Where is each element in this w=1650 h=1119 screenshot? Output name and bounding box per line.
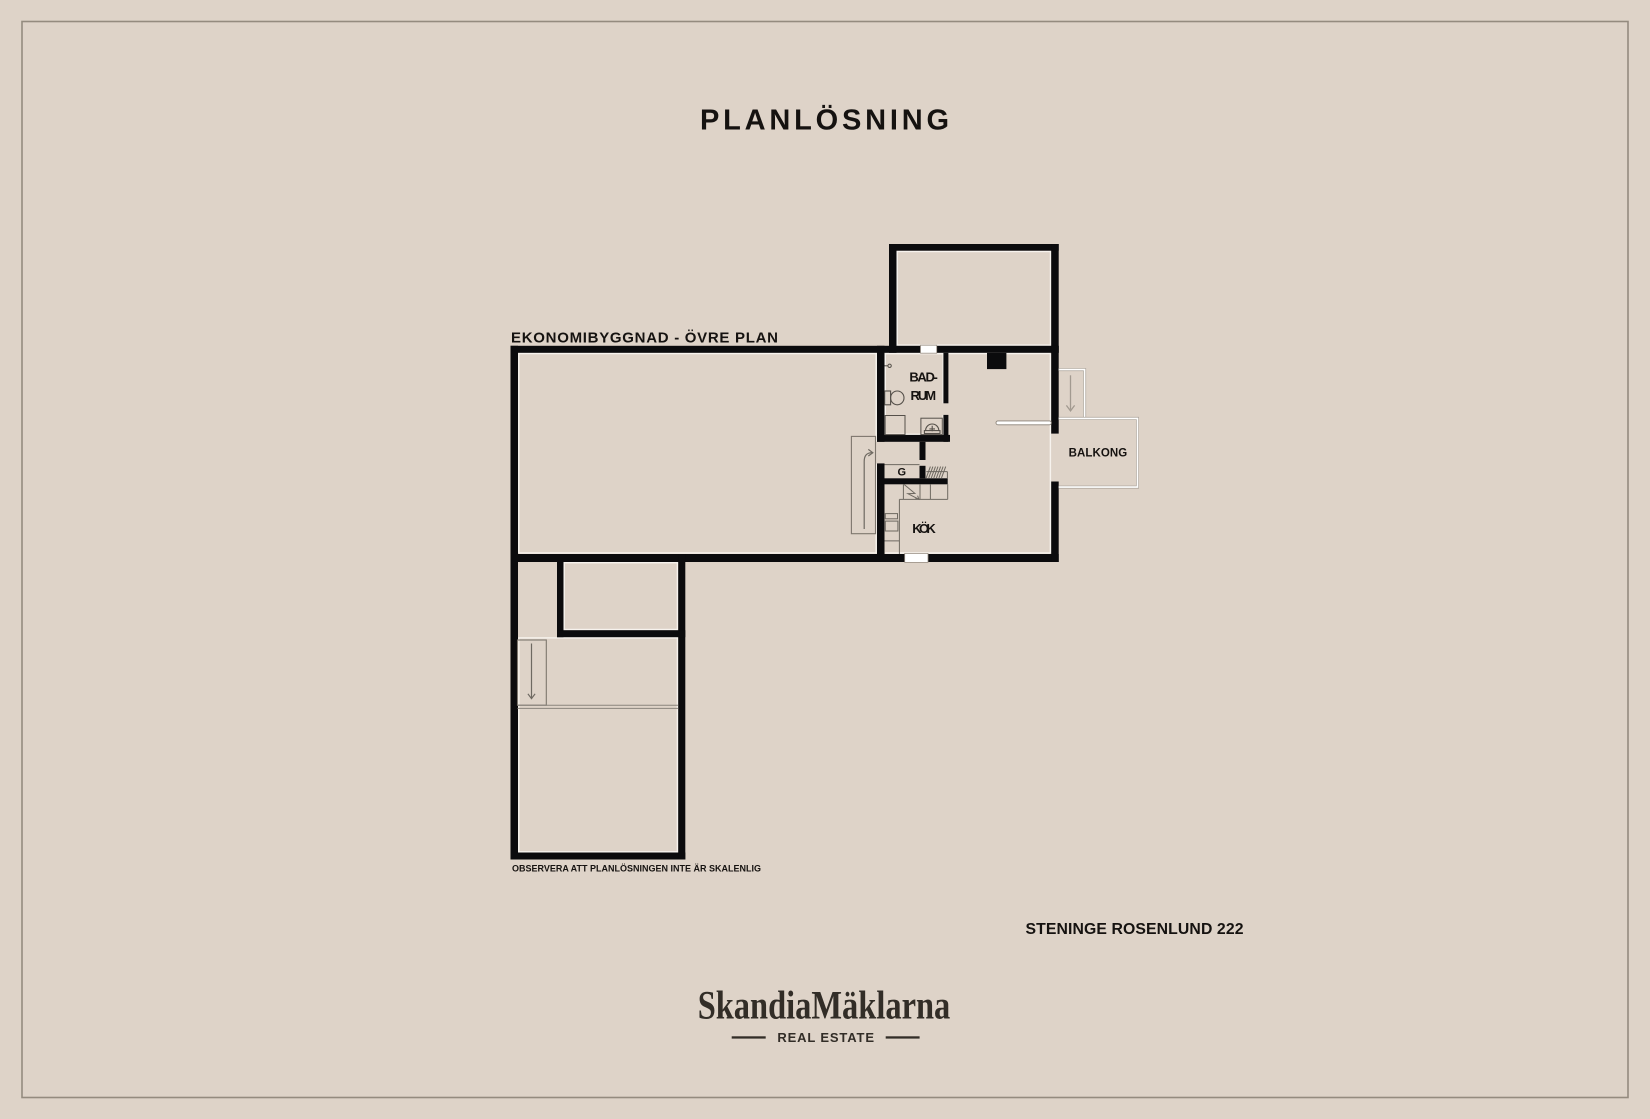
svg-text:OBSERVERA ATT PLANLÖSNINGEN IN: OBSERVERA ATT PLANLÖSNINGEN INTE ÄR SKAL… xyxy=(512,864,761,874)
svg-text:G: G xyxy=(898,466,907,478)
svg-text:RUM: RUM xyxy=(911,388,937,403)
svg-text:BALKONG: BALKONG xyxy=(1069,447,1128,459)
svg-text:REAL ESTATE: REAL ESTATE xyxy=(777,1030,874,1045)
svg-text:EKONOMIBYGGNAD - ÖVRE PLAN: EKONOMIBYGGNAD - ÖVRE PLAN xyxy=(511,330,778,347)
svg-text:BAD-: BAD- xyxy=(909,369,938,384)
svg-text:STENINGE ROSENLUND 222: STENINGE ROSENLUND 222 xyxy=(1026,921,1244,938)
svg-text:KÖK: KÖK xyxy=(912,521,936,536)
svg-text:PLANLÖSNING: PLANLÖSNING xyxy=(700,103,949,136)
svg-text:SkandiaMäklarna: SkandiaMäklarna xyxy=(698,983,951,1028)
